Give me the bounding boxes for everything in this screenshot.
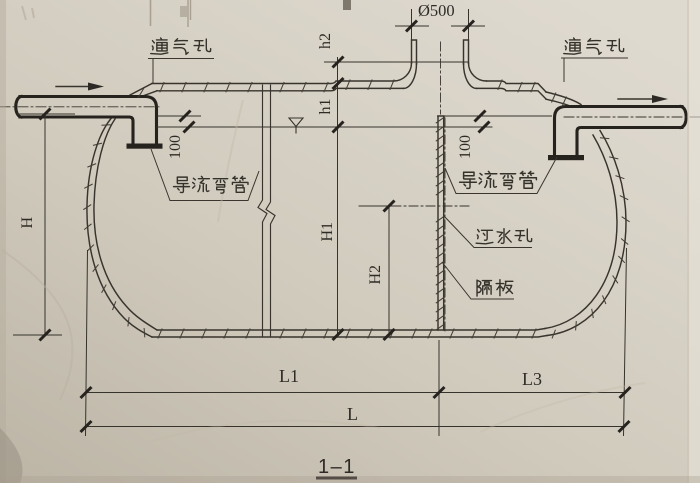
svg-text:H1: H1 xyxy=(319,222,336,242)
svg-text:100: 100 xyxy=(167,135,184,159)
svg-text:h1: h1 xyxy=(317,99,334,115)
svg-text:Ø500: Ø500 xyxy=(418,1,455,20)
svg-text:100: 100 xyxy=(457,135,474,159)
svg-text:h2: h2 xyxy=(317,33,334,49)
svg-text:L1: L1 xyxy=(279,366,299,386)
svg-text:1–1: 1–1 xyxy=(318,456,356,478)
svg-text:L: L xyxy=(347,404,358,424)
svg-text:H: H xyxy=(19,217,36,229)
svg-text:H2: H2 xyxy=(367,265,384,285)
svg-text:L3: L3 xyxy=(522,369,542,389)
